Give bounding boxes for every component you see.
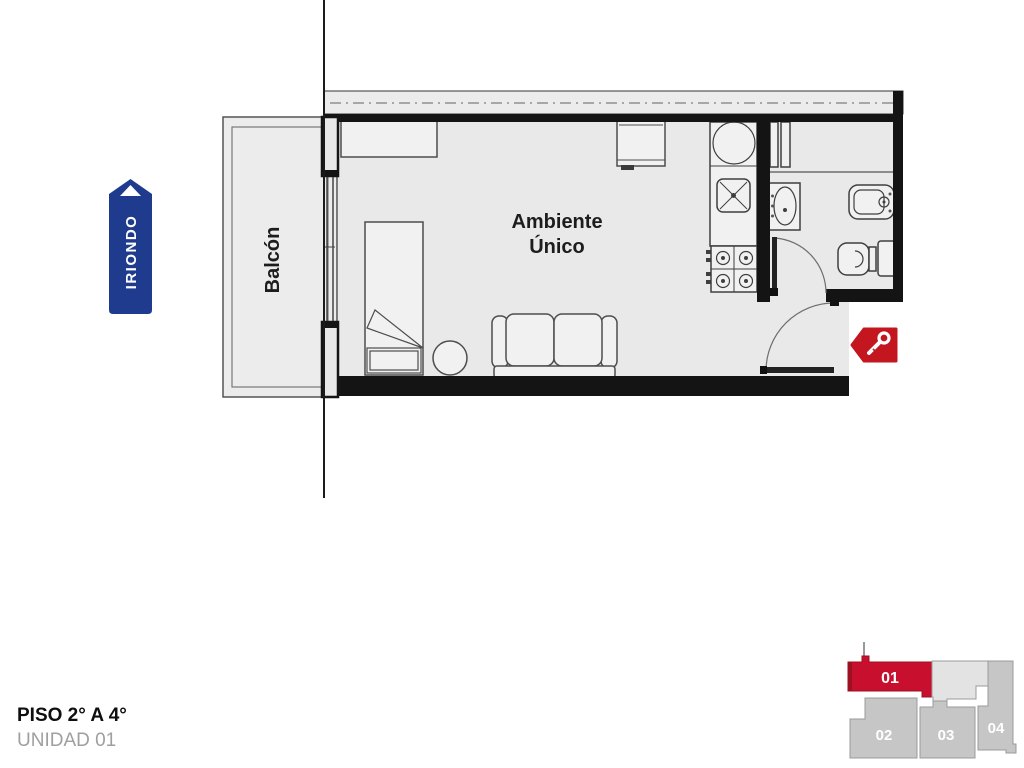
kitchen xyxy=(706,122,757,292)
keyplan-unit-03-label: 03 xyxy=(938,727,955,744)
vanity-sink xyxy=(769,183,800,230)
wall-bottom xyxy=(331,376,849,396)
keyplan: 01 02 03 04 xyxy=(848,642,1016,758)
bathtub xyxy=(849,185,894,219)
floorplan-canvas: Ambiente Único Balcón IRIONDO PISO 2° A … xyxy=(0,0,1024,768)
keyplan-unit-01-shade xyxy=(848,662,852,691)
keyplan-unit-02-label: 02 xyxy=(876,727,893,744)
street-badge-label: IRIONDO xyxy=(123,215,140,290)
wall-kitchen-divider xyxy=(757,114,770,302)
street-badge: IRIONDO xyxy=(109,179,152,314)
key-tag-shape xyxy=(852,329,896,361)
floorplan-page: Ambiente Único Balcón IRIONDO PISO 2° A … xyxy=(0,0,1024,768)
desk xyxy=(617,121,665,170)
room-label-line2: Único xyxy=(529,234,585,258)
wall-top xyxy=(324,114,903,122)
keyplan-unit-01-label: 01 xyxy=(881,670,899,687)
room-label-line1: Ambiente xyxy=(511,211,602,233)
duct-shaft xyxy=(781,122,790,167)
toilet xyxy=(838,243,876,275)
floor-range-label: PISO 2° A 4° xyxy=(17,705,127,726)
duct-shaft xyxy=(770,122,778,167)
kitchen-sink xyxy=(717,179,750,212)
unit-label: UNIDAD 01 xyxy=(17,730,116,751)
stove xyxy=(706,246,757,292)
wall-right xyxy=(893,91,903,302)
wardrobe xyxy=(341,121,437,157)
keyplan-unit-04-label: 04 xyxy=(988,720,1005,737)
balcony-label: Balcón xyxy=(262,227,284,294)
entrance-key-tag xyxy=(852,329,896,361)
side-table xyxy=(433,341,467,375)
bed xyxy=(365,222,423,375)
keyplan-common-area xyxy=(932,661,988,706)
sofa xyxy=(492,314,617,378)
